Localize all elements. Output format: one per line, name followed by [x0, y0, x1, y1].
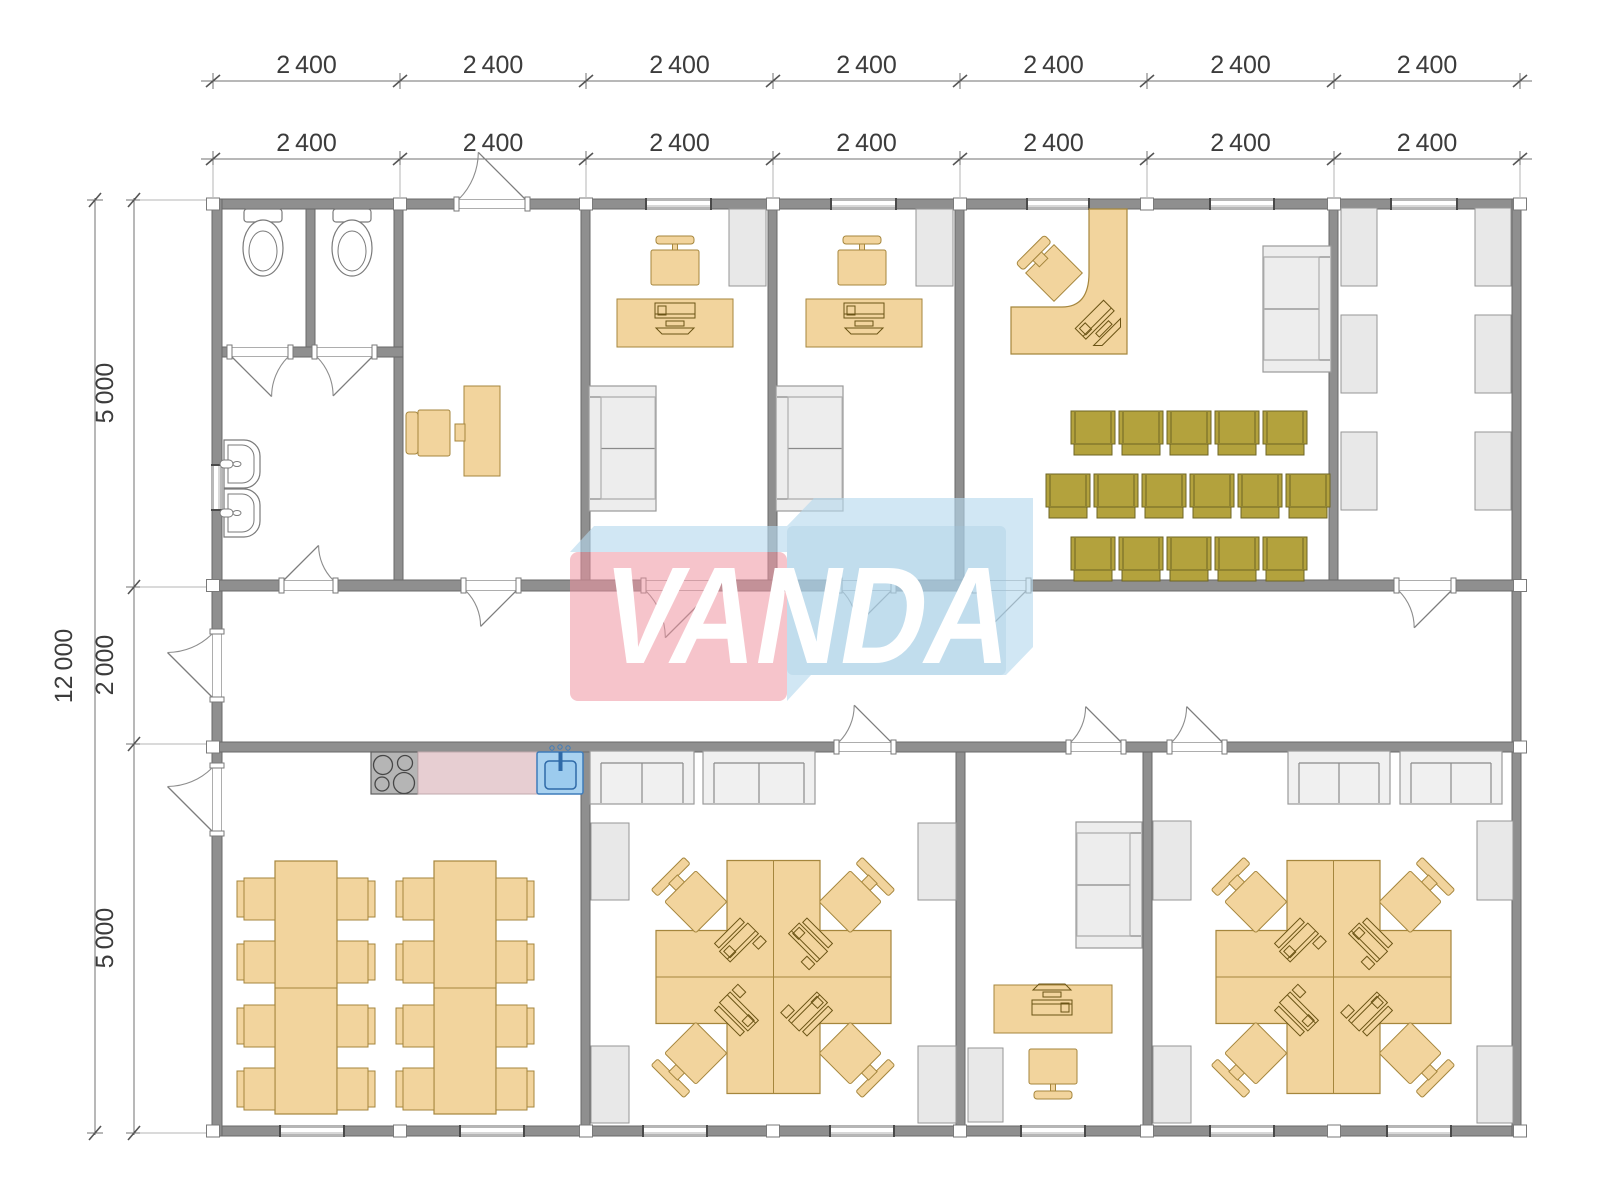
svg-text:2 400: 2 400 — [1023, 129, 1084, 157]
svg-text:VANDA: VANDA — [591, 539, 1026, 693]
svg-text:2 400: 2 400 — [649, 129, 710, 157]
svg-text:5 000: 5 000 — [91, 363, 119, 424]
svg-text:2 000: 2 000 — [91, 635, 119, 696]
svg-text:2 400: 2 400 — [836, 129, 897, 157]
svg-text:2 400: 2 400 — [463, 51, 524, 79]
svg-text:2 400: 2 400 — [1397, 129, 1458, 157]
svg-text:12 000: 12 000 — [50, 629, 78, 704]
svg-text:5 000: 5 000 — [91, 908, 119, 969]
svg-text:2 400: 2 400 — [1023, 51, 1084, 79]
svg-text:2 400: 2 400 — [1210, 129, 1271, 157]
svg-text:2 400: 2 400 — [276, 51, 337, 79]
svg-text:2 400: 2 400 — [1397, 51, 1458, 79]
svg-text:2 400: 2 400 — [276, 129, 337, 157]
svg-text:2 400: 2 400 — [463, 129, 524, 157]
svg-text:2 400: 2 400 — [1210, 51, 1271, 79]
svg-text:2 400: 2 400 — [836, 51, 897, 79]
svg-text:2 400: 2 400 — [649, 51, 710, 79]
